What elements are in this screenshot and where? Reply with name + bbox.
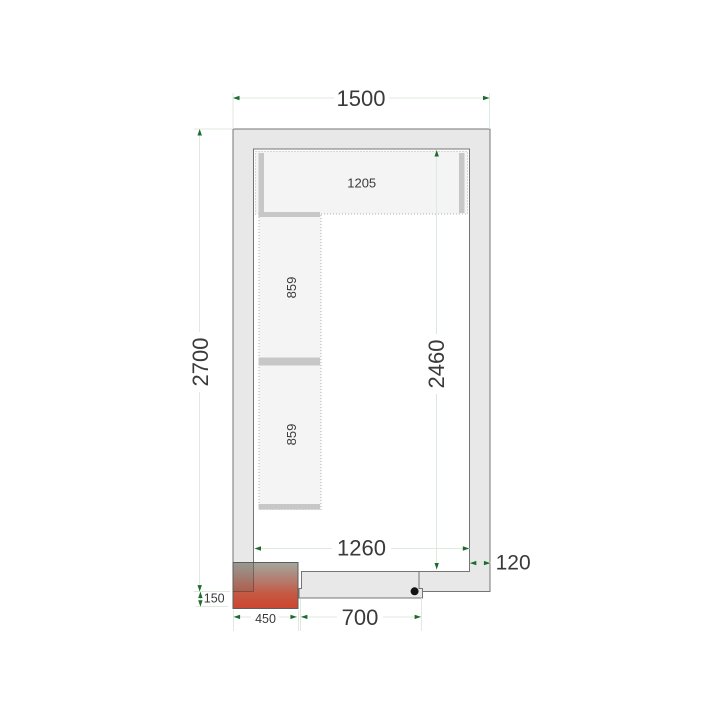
svg-text:700: 700 xyxy=(342,605,379,630)
svg-text:1260: 1260 xyxy=(337,536,386,561)
svg-text:1500: 1500 xyxy=(337,86,386,111)
svg-text:120: 120 xyxy=(496,551,531,574)
svg-text:2460: 2460 xyxy=(424,340,449,389)
svg-text:1205: 1205 xyxy=(347,176,376,191)
svg-text:2700: 2700 xyxy=(188,338,213,387)
svg-text:150: 150 xyxy=(204,591,225,605)
svg-text:859: 859 xyxy=(284,424,299,446)
svg-text:450: 450 xyxy=(255,612,276,626)
svg-text:859: 859 xyxy=(284,277,299,299)
